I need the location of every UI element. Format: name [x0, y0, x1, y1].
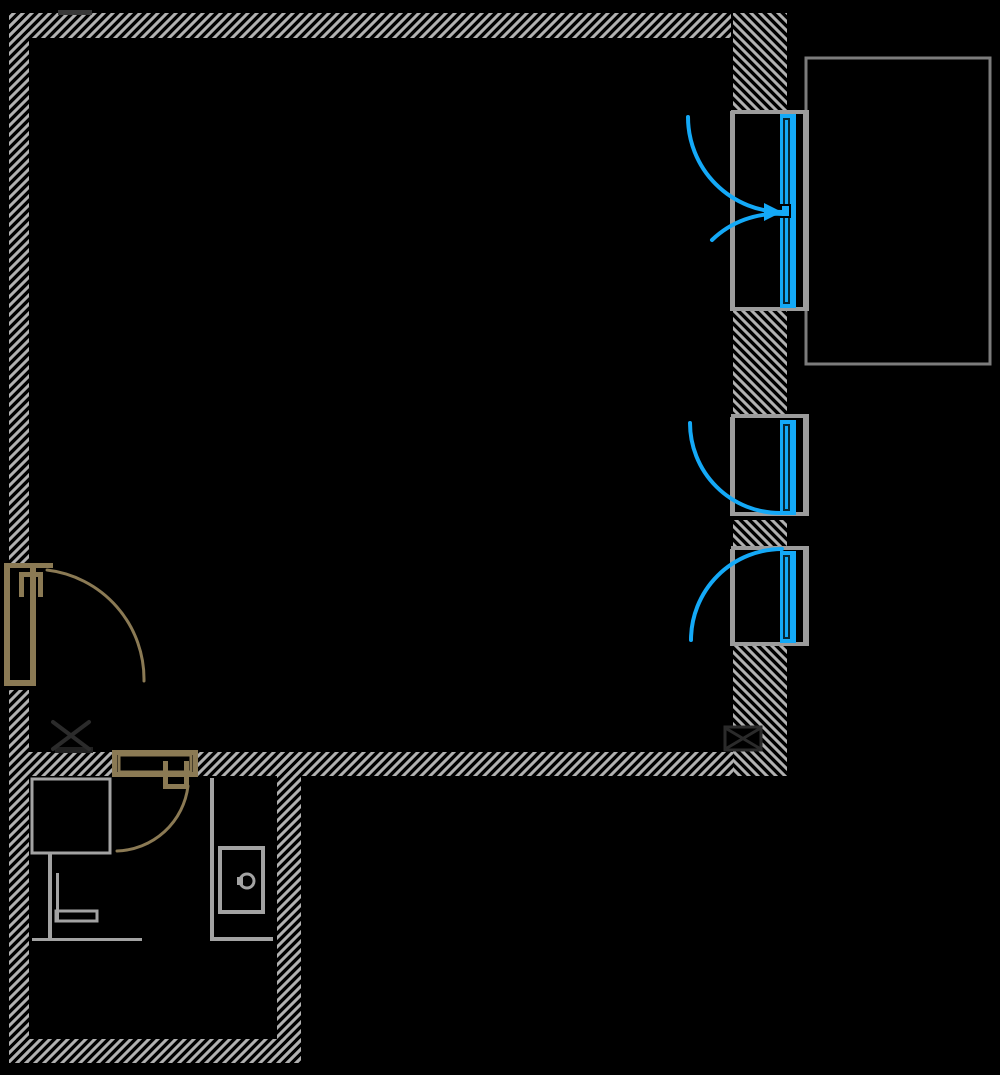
- shower-tray[interactable]: [32, 779, 110, 853]
- wall-artifact-mark: [58, 10, 92, 15]
- bathroom-door-left-cap[interactable]: [112, 750, 117, 777]
- balcony-door-tilt-arc[interactable]: [712, 214, 783, 240]
- right-wall-segment-4: [733, 646, 787, 776]
- entry-door-bottom-bar[interactable]: [4, 680, 36, 686]
- right-wall-segment-2: [733, 311, 787, 418]
- right-wall-segment-1: [733, 13, 787, 111]
- window-middle-head-cap[interactable]: [731, 414, 809, 418]
- bathroom-east-wall: [277, 752, 301, 1063]
- entry-door-handle-left-leg[interactable]: [19, 572, 24, 597]
- balcony-door-arrow[interactable]: [764, 203, 782, 221]
- bathroom-door-right-cap[interactable]: [193, 750, 198, 777]
- bathroom-door-handle-bottom[interactable]: [163, 784, 189, 789]
- balcony-door-jamb-line[interactable]: [730, 111, 735, 311]
- right-wall-segment-3: [733, 520, 787, 548]
- balcony-door-swing-arc[interactable]: [688, 117, 783, 212]
- floorplan-drawing: [0, 0, 1000, 1075]
- balcony-door-sill-cap[interactable]: [731, 307, 809, 311]
- shower-screen-vertical[interactable]: [210, 778, 214, 941]
- entry-door-swing-arc[interactable]: [47, 570, 144, 681]
- shower-screen-horizontal[interactable]: [210, 937, 273, 941]
- walls-layer: [9, 10, 787, 1063]
- toilet-flush-tab[interactable]: [237, 877, 243, 885]
- top-wall: [9, 13, 731, 38]
- grab-bar-horizontal[interactable]: [56, 911, 97, 921]
- entry-door-leaf-left-edge[interactable]: [4, 563, 10, 686]
- bathroom-south-wall: [9, 1039, 301, 1063]
- balcony-door-head-cap[interactable]: [731, 110, 809, 114]
- grab-bar-vertical[interactable]: [48, 853, 52, 941]
- entry-door-leaf-right-edge[interactable]: [30, 563, 36, 686]
- window-lower-sill-cap[interactable]: [731, 642, 809, 646]
- window-middle-outer-line[interactable]: [803, 417, 809, 516]
- fixtures-layer: [32, 778, 273, 941]
- entry-door-handle-right-leg[interactable]: [38, 572, 43, 597]
- columns-layer: [53, 722, 761, 753]
- balcony-door-outer-line[interactable]: [803, 111, 809, 311]
- left-column-x-marker: [53, 722, 89, 749]
- left-wall-upper: [9, 13, 29, 563]
- floorplan-canvas: [0, 0, 1000, 1075]
- balcony-outline: [806, 58, 990, 364]
- window-lower-swing-arc[interactable]: [691, 549, 782, 640]
- shower-floor-line[interactable]: [32, 938, 142, 941]
- balcony-layer: [806, 58, 990, 364]
- left-wall-lower: [9, 690, 29, 1063]
- entry-door-head-bar[interactable]: [4, 563, 53, 568]
- bathroom-door-swing-arc[interactable]: [117, 786, 188, 851]
- partition-wall-left: [29, 752, 112, 776]
- window-lower-outer-line[interactable]: [803, 549, 809, 646]
- bathroom-door-leaf[interactable]: [119, 755, 191, 772]
